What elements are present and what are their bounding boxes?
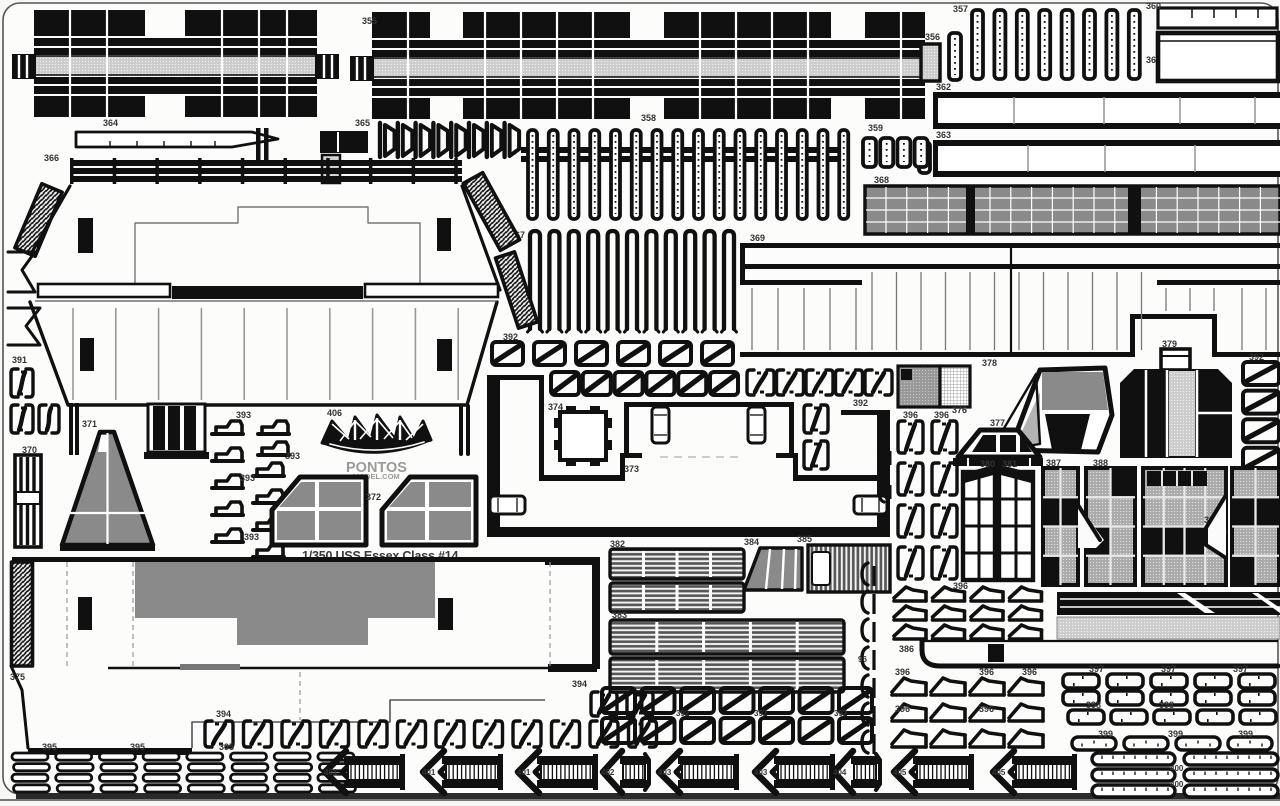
svg-text:379: 379 [1162,339,1177,349]
svg-text:397: 397 [1233,664,1248,674]
svg-text:393: 393 [285,451,300,461]
svg-text:401: 401 [517,768,531,777]
svg-text:375: 375 [10,672,25,682]
svg-text:400: 400 [1170,764,1184,773]
svg-text:36: 36 [1146,55,1156,65]
svg-text:396: 396 [895,704,910,714]
svg-text:378: 378 [982,358,997,368]
svg-text:383: 383 [612,610,627,620]
svg-text:392: 392 [1249,352,1264,362]
svg-text:392: 392 [834,709,848,718]
svg-text:393: 393 [236,410,251,420]
svg-text:395: 395 [42,742,57,752]
svg-text:362: 362 [936,82,951,92]
svg-text:385: 385 [797,534,812,544]
svg-text:394: 394 [572,679,587,689]
svg-text:402: 402 [601,768,615,777]
svg-text:396: 396 [903,410,918,420]
svg-text:357: 357 [953,4,968,14]
svg-text:369: 369 [750,233,765,243]
svg-text:397: 397 [1161,664,1176,674]
svg-text:392: 392 [503,332,518,342]
svg-text:406: 406 [327,408,342,418]
svg-text:396: 396 [953,581,968,591]
svg-text:399: 399 [1238,729,1253,739]
svg-text:401: 401 [422,768,436,777]
svg-text:368: 368 [874,175,889,185]
svg-text:386: 386 [899,644,914,654]
svg-text:356: 356 [925,32,940,42]
svg-text:400: 400 [1170,780,1184,789]
svg-text:384: 384 [744,537,759,547]
svg-text:393: 393 [244,532,259,542]
svg-text:403: 403 [658,768,672,777]
svg-text:395: 395 [219,742,234,752]
svg-text:382: 382 [610,539,625,549]
svg-text:398: 398 [1086,700,1101,710]
svg-text:370: 370 [22,445,37,455]
svg-text:387: 387 [1046,458,1061,468]
svg-text:374: 374 [548,402,563,412]
svg-text:373: 373 [624,464,639,474]
svg-text:405: 405 [992,768,1006,777]
svg-text:366: 366 [44,153,59,163]
svg-text:393: 393 [240,473,255,483]
svg-text:363: 363 [936,130,951,140]
svg-text:399: 399 [1168,729,1183,739]
svg-text:396: 396 [1022,667,1037,677]
svg-text:392: 392 [676,709,690,718]
svg-text:405: 405 [893,768,907,777]
svg-text:396: 396 [979,667,994,677]
svg-text:358: 358 [641,113,656,123]
svg-text:364: 364 [103,118,118,128]
svg-text:365: 365 [355,118,370,128]
svg-text:394: 394 [216,709,231,719]
svg-text:401: 401 [324,768,338,777]
svg-text:395: 395 [130,742,145,752]
svg-text:404: 404 [833,768,847,777]
svg-text:392: 392 [853,398,868,408]
svg-text:388: 388 [1093,458,1108,468]
svg-text:399: 399 [1098,729,1113,739]
svg-text:397: 397 [1089,664,1104,674]
svg-text:396: 396 [895,667,910,677]
svg-text:371: 371 [82,419,97,429]
svg-text:372: 372 [366,492,381,502]
svg-text:392: 392 [754,709,768,718]
svg-text:96: 96 [858,655,867,664]
svg-text:396: 396 [934,410,949,420]
svg-text:355: 355 [362,16,377,26]
svg-text:391: 391 [12,355,27,365]
svg-text:398: 398 [1159,700,1174,710]
svg-text:380: 380 [980,459,995,469]
svg-text:360: 360 [1146,1,1161,11]
svg-text:381: 381 [1002,459,1017,469]
svg-text:396: 396 [979,704,994,714]
svg-text:359: 359 [868,123,883,133]
svg-text:376: 376 [952,405,967,415]
svg-text:403: 403 [754,768,768,777]
svg-text:377: 377 [990,418,1005,428]
